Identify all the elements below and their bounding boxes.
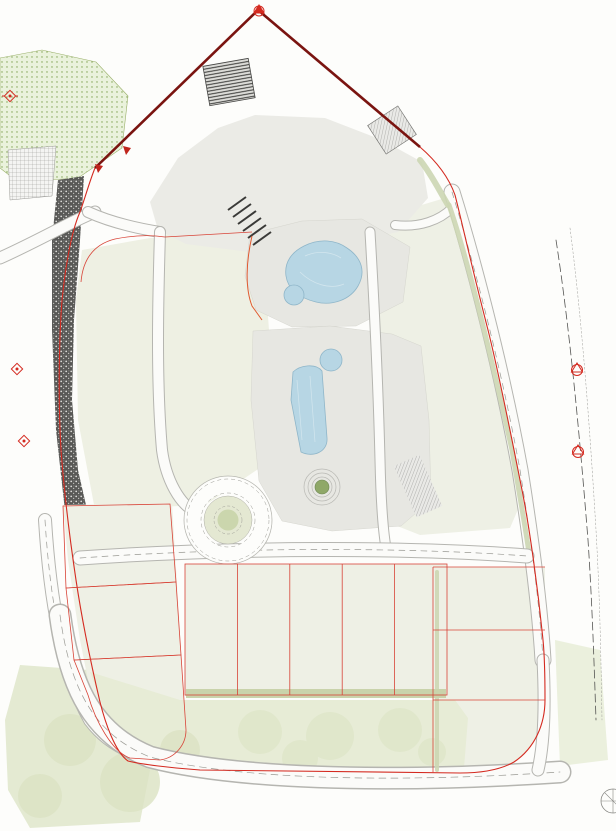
east-green-strip <box>555 640 608 766</box>
parking-ramp <box>203 58 255 105</box>
villa-5-parcel <box>185 564 447 696</box>
masterplan-canvas <box>0 0 616 831</box>
kids-pool-lower <box>320 349 342 371</box>
existing-structure-grid <box>8 146 56 200</box>
site-plan-drawing <box>0 0 616 831</box>
kids-pool-upper <box>284 285 304 305</box>
